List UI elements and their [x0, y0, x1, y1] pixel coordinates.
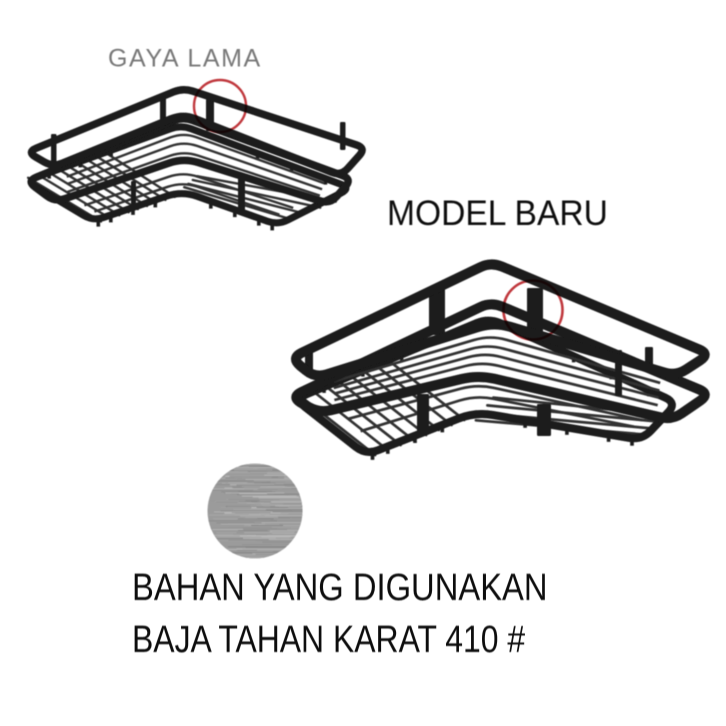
svg-text:BAHAN YANG DIGUNAKAN: BAHAN YANG DIGUNAKAN	[132, 566, 548, 609]
svg-text:MODEL BARU: MODEL BARU	[387, 194, 608, 233]
svg-text:GAYA LAMA: GAYA LAMA	[108, 45, 262, 73]
svg-text:BAJA TAHAN KARAT 410 #: BAJA TAHAN KARAT 410 #	[132, 618, 526, 660]
